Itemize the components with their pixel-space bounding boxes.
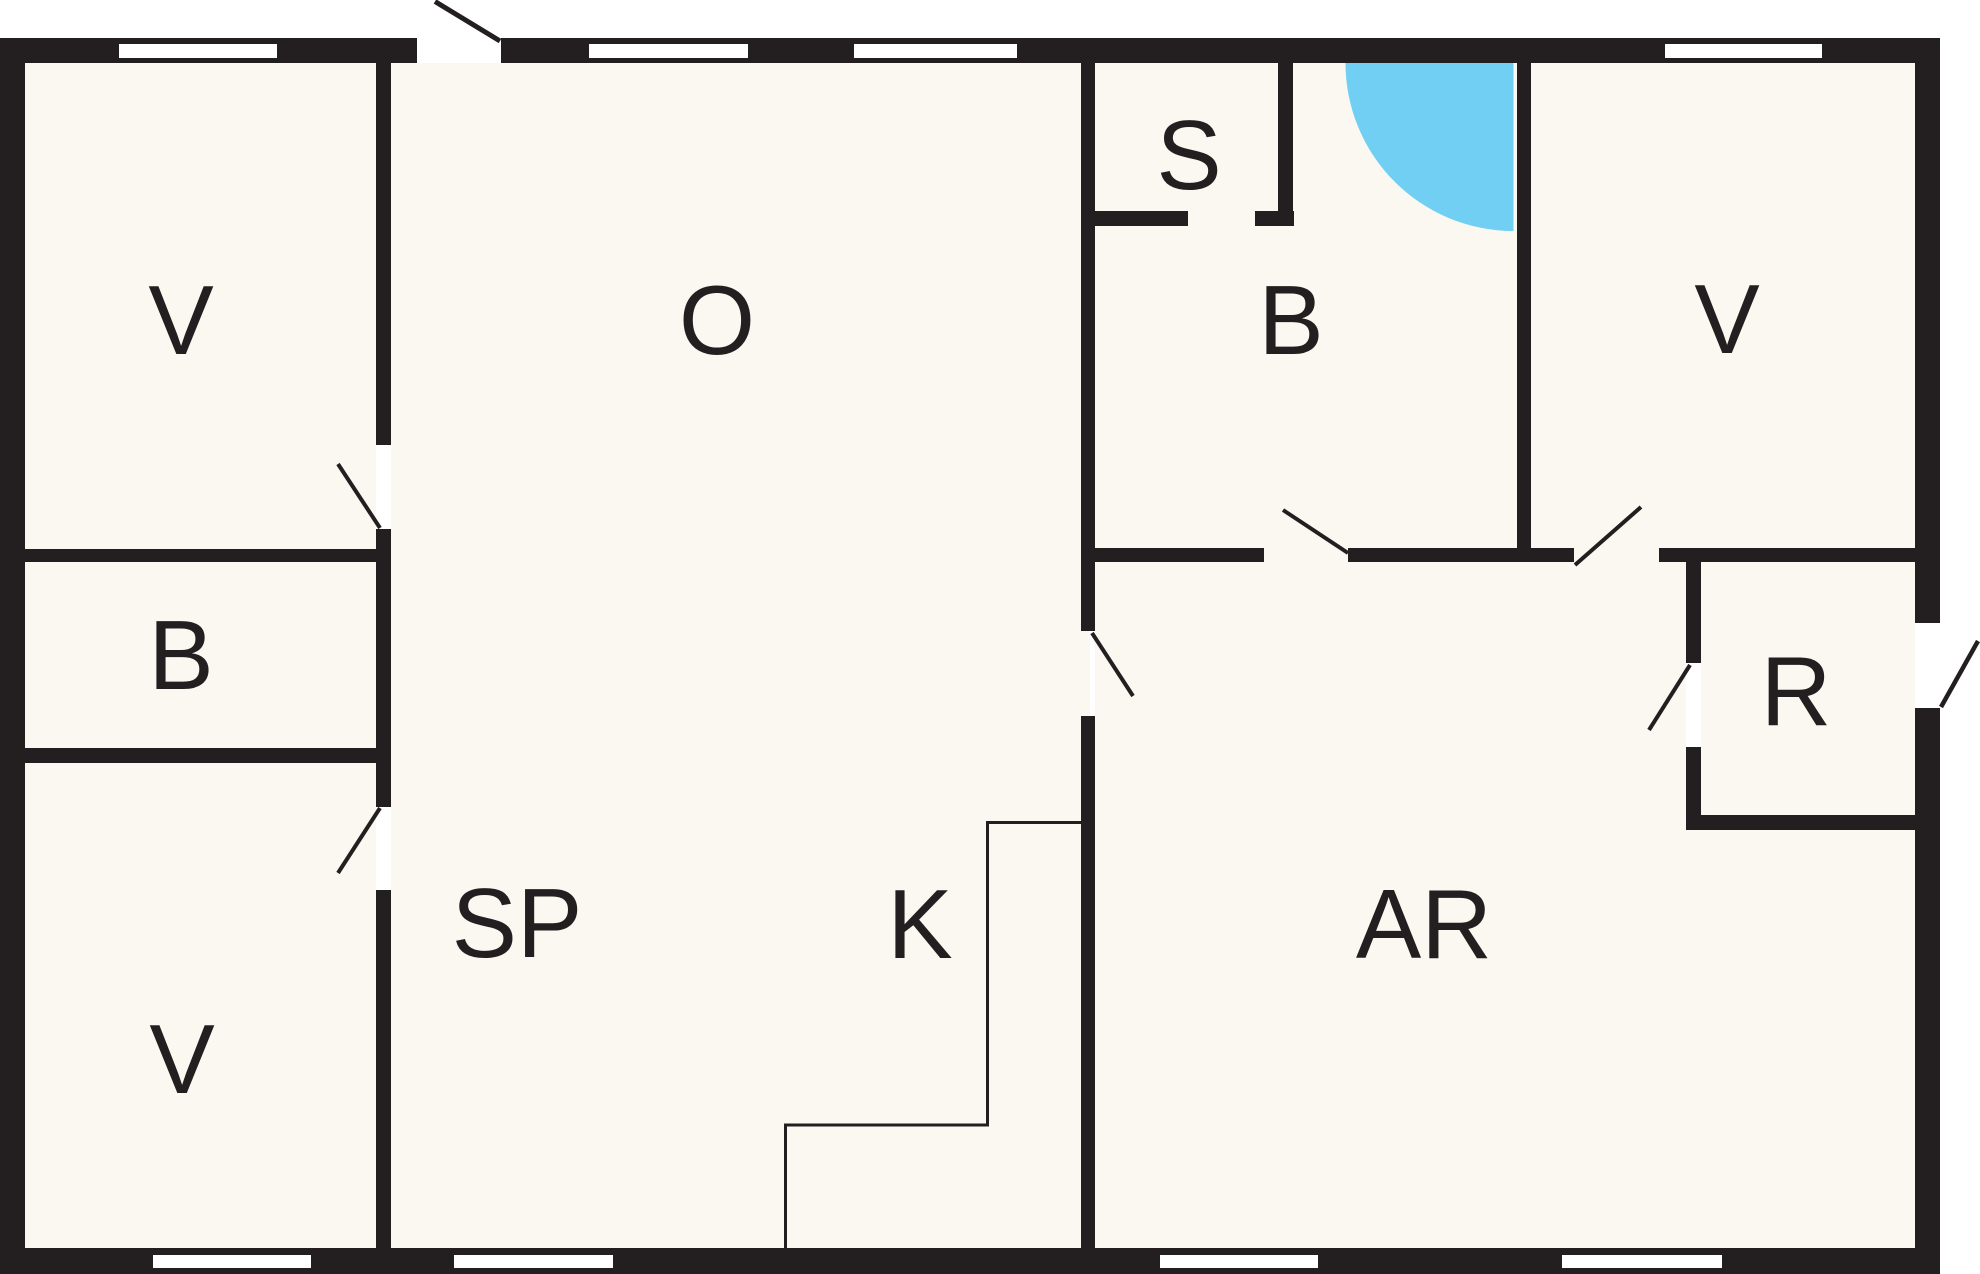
svg-text:R: R — [1761, 636, 1832, 746]
svg-text:S: S — [1156, 100, 1221, 210]
svg-text:V: V — [148, 265, 213, 375]
svg-text:O: O — [679, 265, 755, 375]
svg-text:AR: AR — [1356, 869, 1492, 979]
svg-text:V: V — [149, 1004, 214, 1114]
svg-text:B: B — [1258, 265, 1323, 375]
svg-text:K: K — [887, 869, 952, 979]
svg-text:SP: SP — [452, 868, 583, 978]
svg-text:V: V — [1694, 264, 1759, 374]
svg-text:B: B — [148, 600, 213, 710]
